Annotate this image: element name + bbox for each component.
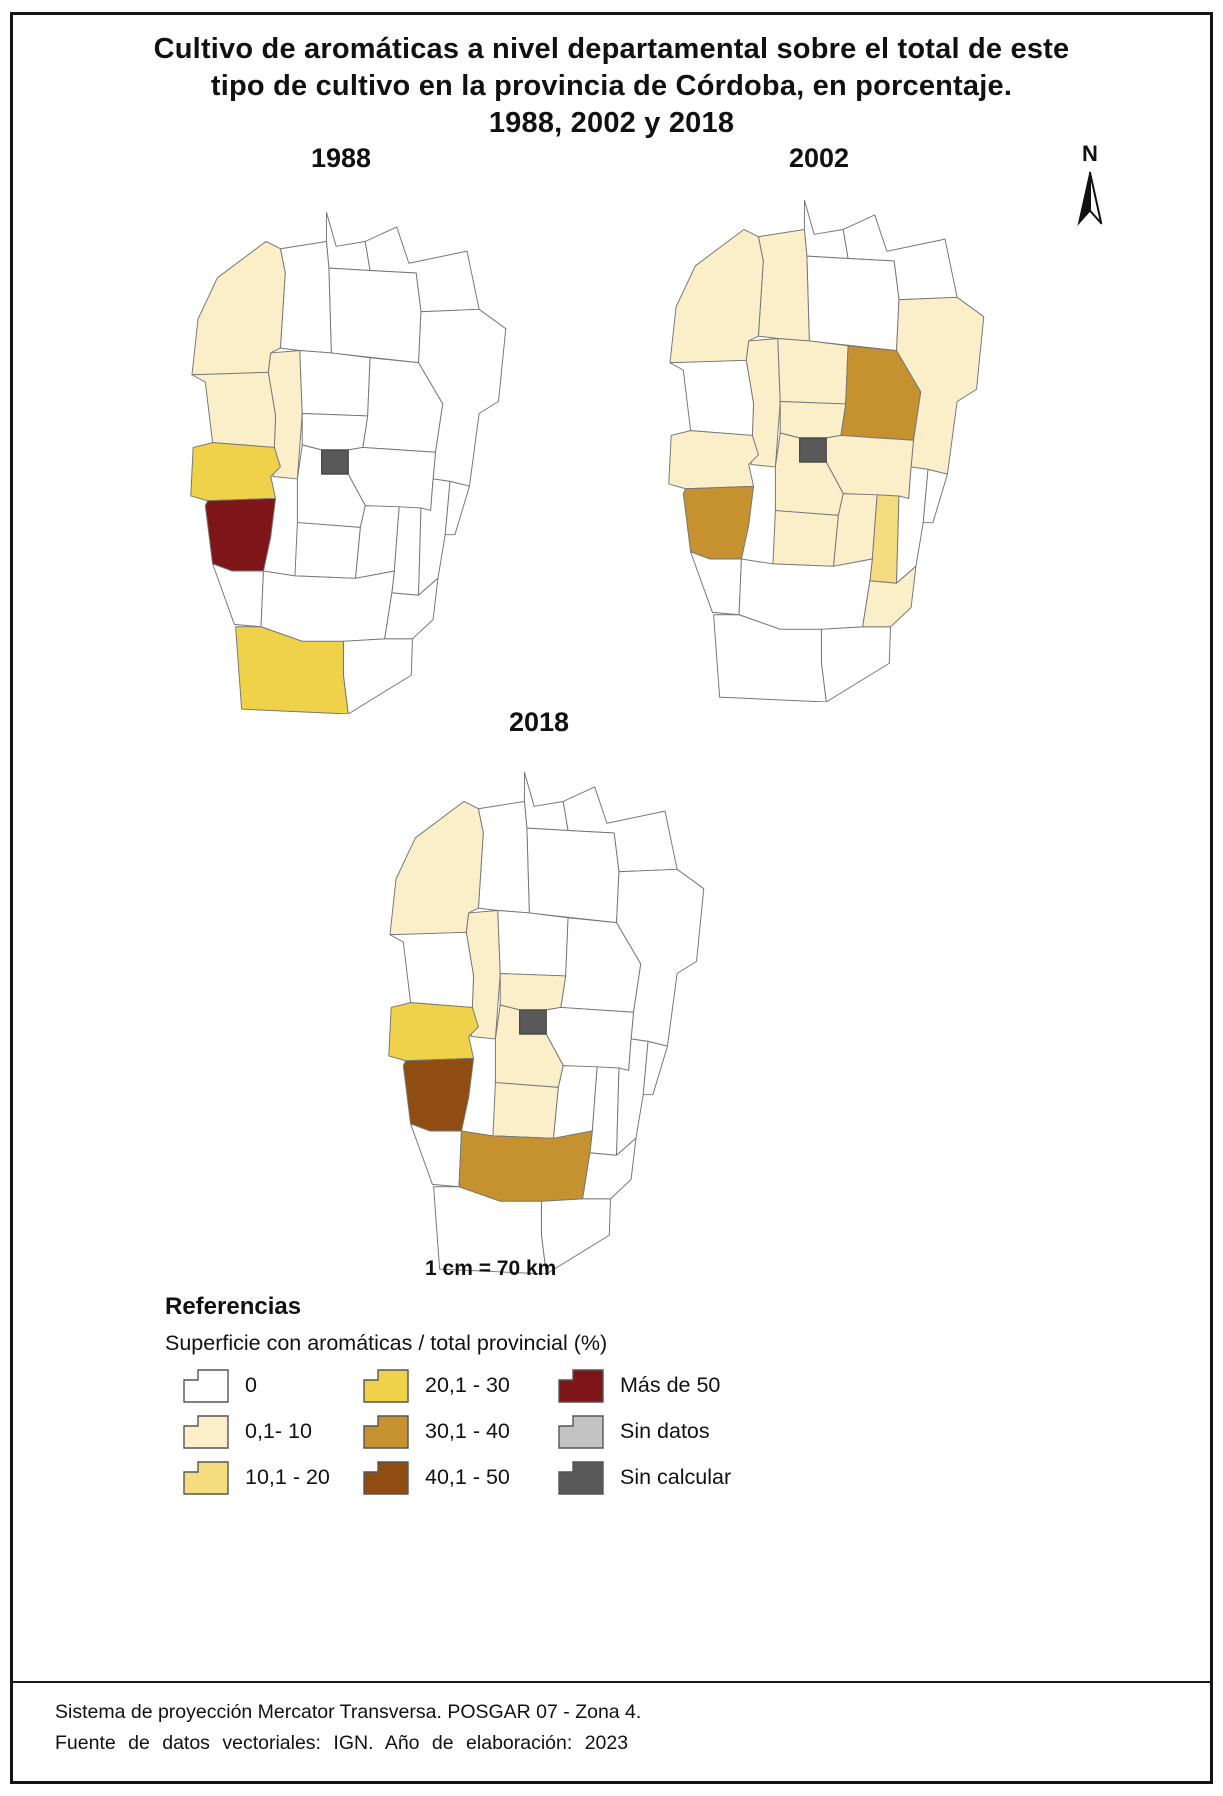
- footer-line-2: Fuente de datos vectoriales: IGN. Año de…: [55, 1728, 1210, 1759]
- department-sobremonte: [804, 200, 848, 258]
- department-tulumba: [329, 268, 421, 363]
- legend-item-label: 10,1 - 20: [245, 1465, 330, 1490]
- department-san-javier: [691, 552, 742, 615]
- map-poster-page: Cultivo de aromáticas a nivel departamen…: [0, 0, 1223, 1796]
- legend-item-label: 0,1- 10: [245, 1419, 312, 1444]
- department-rio-cuarto: [459, 1131, 592, 1201]
- north-arrow: N: [1068, 143, 1112, 234]
- title-line-3: 1988, 2002 y 2018: [489, 107, 734, 139]
- department-saenz-pena: [821, 627, 890, 702]
- department-san-alberto: [403, 1058, 473, 1131]
- map-2002: [631, 181, 1007, 702]
- department-rio-cuarto: [261, 571, 394, 641]
- page-frame: Cultivo de aromáticas a nivel departamen…: [10, 12, 1213, 1784]
- department-ischilin: [758, 229, 809, 340]
- department-totoral: [778, 339, 848, 404]
- department-san-alberto: [683, 486, 753, 559]
- department-capital: [800, 438, 827, 462]
- department-calamuchita: [295, 523, 360, 579]
- legend-item: 10,1 - 20: [183, 1459, 363, 1496]
- department-saenz-pena: [343, 639, 412, 714]
- department-calamuchita: [773, 511, 838, 567]
- legend-item-label: 20,1 - 30: [425, 1373, 510, 1398]
- department-marcos-juarez: [643, 1041, 667, 1094]
- department-pocho: [669, 431, 759, 489]
- legend-item-label: Sin calcular: [620, 1465, 731, 1490]
- department-san-javier: [213, 564, 264, 627]
- legend-swatch-icon: [183, 1461, 229, 1495]
- department-marcos-juarez: [445, 481, 469, 534]
- department-capital: [322, 450, 349, 474]
- department-sobremonte: [326, 212, 370, 270]
- department-rio-cuarto: [739, 559, 872, 629]
- legend-swatch-icon: [183, 1369, 229, 1403]
- legend-item: Más de 50: [558, 1367, 818, 1404]
- department-totoral: [498, 911, 568, 976]
- legend-swatch-icon: [363, 1415, 409, 1449]
- map-year-label-2002: 2002: [631, 143, 1007, 174]
- department-san-alberto: [205, 498, 275, 571]
- map-year-label-1988: 1988: [153, 143, 529, 174]
- department-colon: [780, 402, 845, 438]
- legend-item: 0,1- 10: [183, 1413, 363, 1450]
- legend-column-2: 20,1 - 30 30,1 - 40 40,1 - 50: [363, 1367, 558, 1496]
- north-arrow-icon: [1073, 167, 1107, 229]
- legend-item-label: Más de 50: [620, 1373, 720, 1398]
- scale-text: 1 cm = 70 km: [425, 1257, 556, 1281]
- legend-item-label: 0: [245, 1373, 257, 1398]
- legend-column-3: Más de 50 Sin datos Sin calcular: [558, 1367, 818, 1496]
- map-2018: [351, 753, 727, 1274]
- department-colon: [302, 414, 367, 450]
- footer: Sistema de proyección Mercator Transvers…: [13, 1681, 1210, 1781]
- legend-item-label: 30,1 - 40: [425, 1419, 510, 1444]
- department-minas: [192, 372, 276, 447]
- legend-swatch-icon: [363, 1369, 409, 1403]
- legend-item: Sin datos: [558, 1413, 818, 1450]
- legend-swatch-icon: [558, 1369, 604, 1403]
- legend-item: 0: [183, 1367, 363, 1404]
- department-sobremonte: [524, 772, 568, 830]
- department-minas: [670, 360, 754, 435]
- department-ischilin: [478, 801, 529, 912]
- legend-item-label: 40,1 - 50: [425, 1465, 510, 1490]
- title-line-2: tipo de cultivo en la provincia de Córdo…: [211, 70, 1012, 102]
- map-1988: [153, 193, 529, 714]
- map-2002-svg: [631, 181, 1007, 702]
- legend-column-1: 0 0,1- 10 10,1 - 20: [183, 1367, 363, 1496]
- legend-swatch-icon: [558, 1461, 604, 1495]
- legend-item: 40,1 - 50: [363, 1459, 558, 1496]
- legend-heading: Referencias: [165, 1293, 301, 1321]
- legend-subtitle: Superficie con aromáticas / total provin…: [165, 1331, 607, 1356]
- north-label: N: [1068, 143, 1112, 165]
- legend-item: Sin calcular: [558, 1459, 818, 1496]
- legend-swatch-icon: [183, 1415, 229, 1449]
- department-totoral: [300, 351, 370, 416]
- department-capital: [520, 1010, 547, 1034]
- legend: 0 0,1- 10 10,1 - 20 20,1 - 30: [183, 1367, 818, 1496]
- title-line-1: Cultivo de aromáticas a nivel departamen…: [154, 33, 1070, 65]
- department-tulumba: [807, 256, 899, 351]
- department-san-javier: [411, 1124, 462, 1187]
- map-year-label-2018: 2018: [351, 707, 727, 738]
- legend-swatch-icon: [363, 1461, 409, 1495]
- department-ischilin: [280, 241, 331, 352]
- legend-item: 30,1 - 40: [363, 1413, 558, 1450]
- map-2018-svg: [351, 753, 727, 1274]
- legend-swatch-icon: [558, 1415, 604, 1449]
- department-pocho: [191, 443, 281, 501]
- footer-line-1: Sistema de proyección Mercator Transvers…: [55, 1697, 1210, 1728]
- department-colon: [500, 974, 565, 1010]
- legend-item: 20,1 - 30: [363, 1367, 558, 1404]
- department-minas: [390, 932, 474, 1007]
- department-marcos-juarez: [923, 469, 947, 522]
- department-calamuchita: [493, 1083, 558, 1139]
- department-tulumba: [527, 828, 619, 923]
- page-title: Cultivo de aromáticas a nivel departamen…: [13, 31, 1210, 142]
- map-1988-svg: [153, 193, 529, 714]
- legend-item-label: Sin datos: [620, 1419, 710, 1444]
- department-pocho: [389, 1003, 479, 1061]
